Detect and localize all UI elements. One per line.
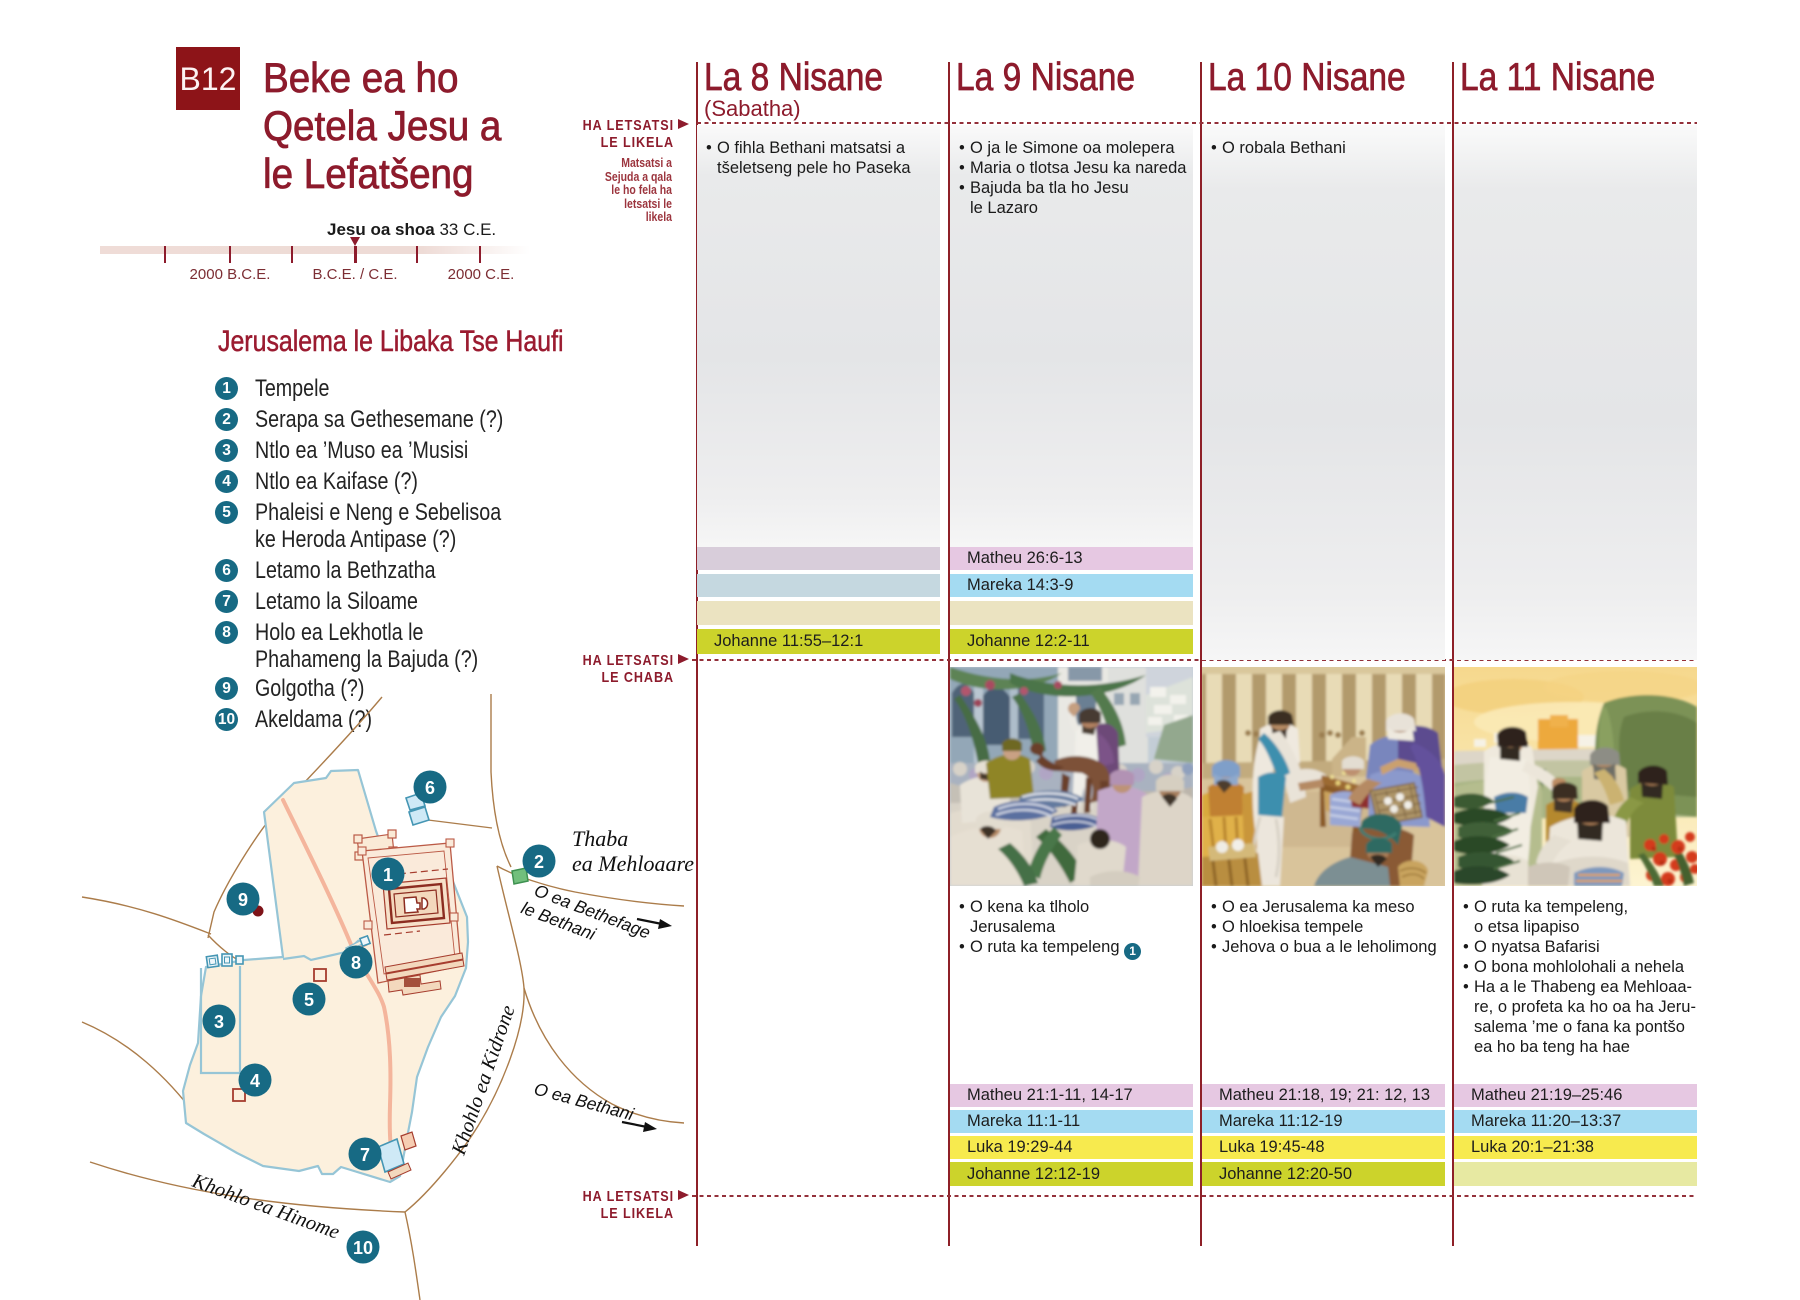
svg-text:10: 10 (353, 1238, 373, 1258)
svg-text:Thaba: Thaba (572, 826, 628, 851)
svg-text:2: 2 (534, 852, 544, 872)
svg-text:4: 4 (250, 1071, 260, 1091)
svg-text:ea Mehloaare: ea Mehloaare (572, 851, 694, 876)
svg-text:3: 3 (214, 1012, 224, 1032)
svg-text:1: 1 (383, 865, 393, 885)
svg-text:8: 8 (351, 953, 361, 973)
svg-text:7: 7 (360, 1145, 370, 1165)
svg-text:5: 5 (304, 990, 314, 1010)
svg-text:6: 6 (425, 778, 435, 798)
svg-text:9: 9 (238, 890, 248, 910)
svg-text:Khohlo ea Kidrone: Khohlo ea Kidrone (448, 1003, 520, 1159)
